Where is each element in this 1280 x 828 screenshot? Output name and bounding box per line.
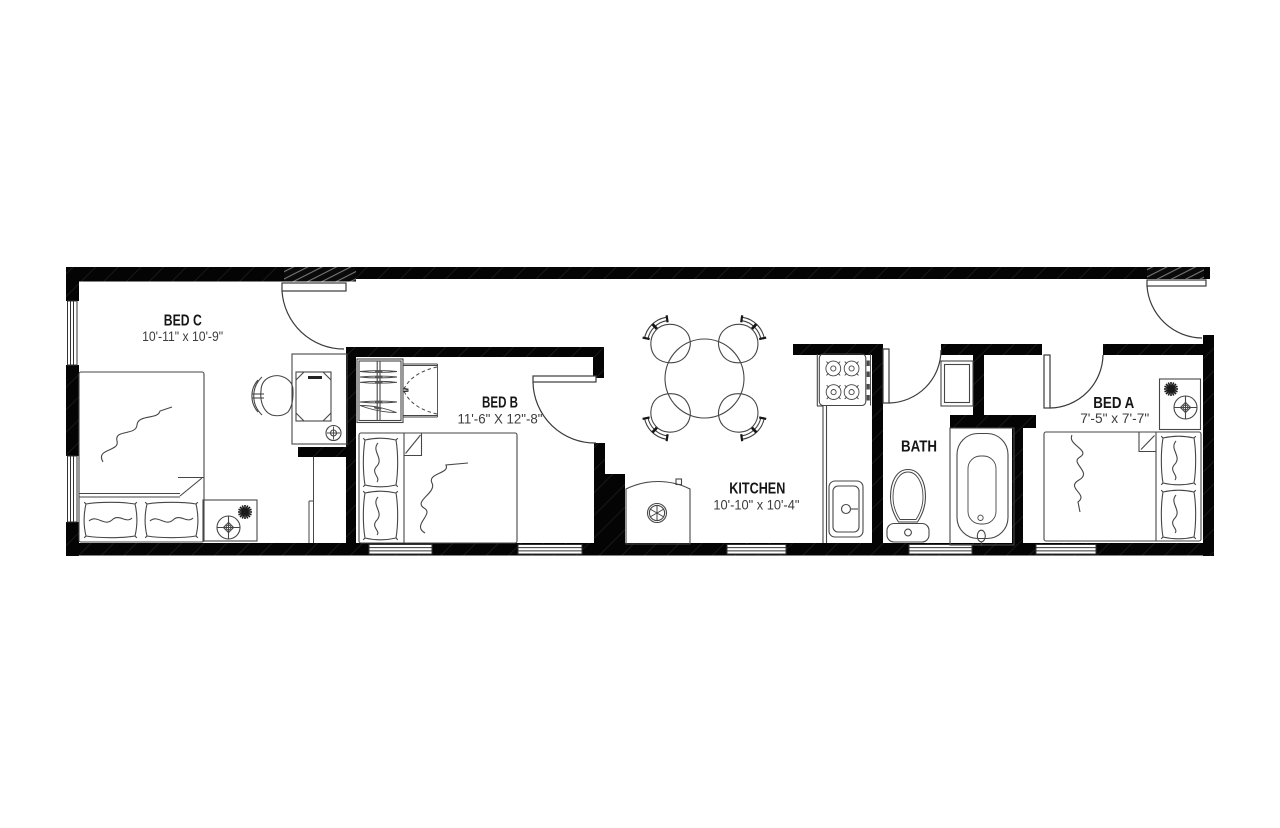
svg-text:10'-11" x 10'-9": 10'-11" x 10'-9" [142,328,223,344]
svg-text:10'-10" x 10'-4": 10'-10" x 10'-4" [713,497,799,513]
svg-text:BED C: BED C [164,313,202,330]
svg-text:7'-5" x 7'-7": 7'-5" x 7'-7" [1080,410,1149,426]
svg-text:BED B: BED B [482,395,518,412]
svg-text:11'-6" X 12"-8": 11'-6" X 12"-8" [458,411,543,427]
svg-text:BATH: BATH [901,439,937,456]
svg-text:KITCHEN: KITCHEN [729,481,785,498]
